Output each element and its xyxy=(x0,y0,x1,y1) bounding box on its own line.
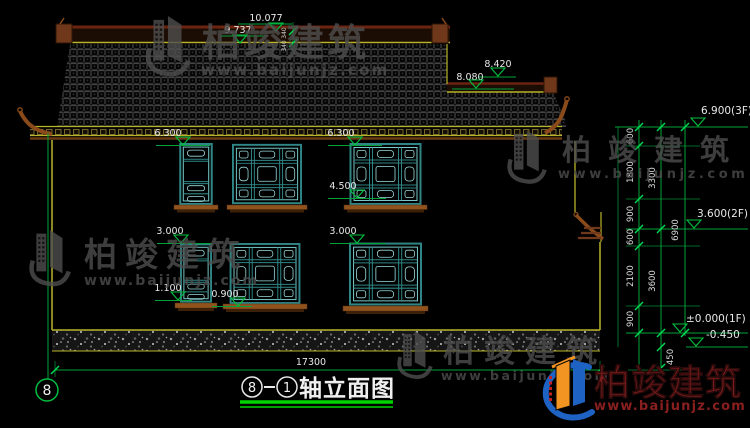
watermark-url: www.baijunjz.com xyxy=(201,61,389,79)
title-axis-from: 8 xyxy=(248,381,256,396)
logo-url-text: www.baijunjz.com xyxy=(594,399,746,414)
chain-dim: 2100 xyxy=(626,265,636,287)
watermark-url: www.baijunjz.com xyxy=(84,273,259,289)
title-axis-to: 1 xyxy=(283,381,291,396)
chain-dim: 900 xyxy=(626,311,636,327)
level-text: 3.600(2F) xyxy=(697,208,748,220)
dim-text: 17300 xyxy=(296,357,326,368)
watermark-brand: 柏竣建筑 xyxy=(84,235,248,274)
watermark-url: www.baijunjz.com xyxy=(558,167,748,182)
level-text: -0.450 xyxy=(706,329,740,341)
chain-dim: 600 xyxy=(626,229,636,245)
chain-dim: 900 xyxy=(626,206,636,222)
chain-dim: 3600 xyxy=(648,270,658,292)
axis-bubble-label: 8 xyxy=(43,383,52,399)
level-text: 6.900(3F) xyxy=(701,105,750,117)
window-sills-2f xyxy=(174,205,427,213)
level-text: ±0.000(1F) xyxy=(686,313,746,325)
cad-elevation-screenshot: 8 10.077 9.737 340 340 8.420 8.080 6.300… xyxy=(0,0,750,428)
elevation-drawing: 8 10.077 9.737 340 340 8.420 8.080 6.300… xyxy=(0,0,750,428)
chain-dim: 6900 xyxy=(671,219,681,241)
watermark-brand: 柏竣建筑 xyxy=(202,21,370,65)
watermark-brand: 柏竣建筑 xyxy=(562,133,746,167)
logo-brand-text: 柏竣建筑 xyxy=(594,363,742,404)
title-label: 轴立面图 xyxy=(299,375,395,402)
